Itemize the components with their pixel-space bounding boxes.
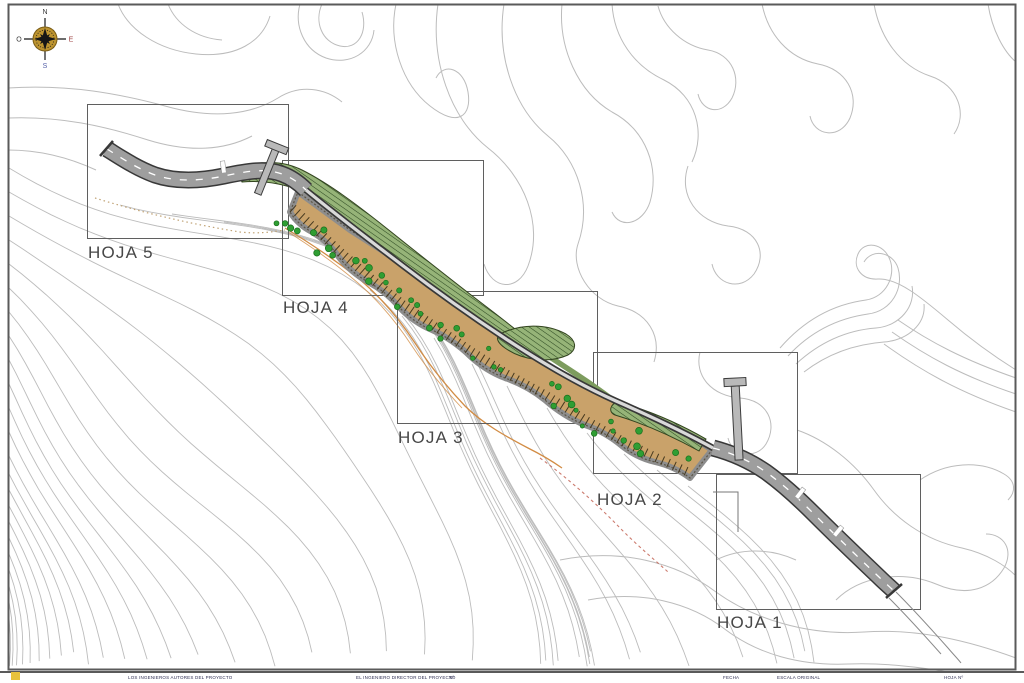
contour-line: [685, 166, 760, 284]
contour-line: [9, 474, 89, 664]
tree-symbol: [310, 230, 316, 236]
compass-letter-o: O: [16, 37, 22, 44]
tree-symbol: [580, 424, 584, 428]
tree-symbol: [438, 336, 443, 341]
contour-line: [920, 465, 1014, 500]
tree-symbol: [621, 438, 627, 444]
compass-rose: N S E O: [16, 9, 73, 70]
tree-symbol: [673, 450, 679, 456]
title-block: LOS INGENIEROS AUTORES DEL PROYECTOEL IN…: [0, 671, 1024, 683]
tree-symbol: [366, 278, 373, 285]
tree-symbol: [611, 429, 615, 433]
tree-symbol: [409, 298, 414, 303]
contour-line: [688, 486, 814, 662]
tree-symbol: [282, 221, 288, 227]
tree-symbol: [564, 395, 571, 402]
compass-letter-n: N: [42, 9, 47, 16]
tree-symbol: [362, 258, 367, 263]
road-east-surface: [713, 448, 894, 591]
contour-line: [9, 408, 147, 659]
corner-mark: [11, 672, 20, 680]
tree-symbol: [568, 401, 575, 408]
tree-symbol: [287, 225, 293, 231]
plan-drawing: HOJA 1HOJA 2HOJA 3HOJA 4HOJA 5: [0, 0, 1024, 683]
compass-letter-s: S: [43, 63, 48, 70]
tree-symbol: [274, 221, 279, 226]
title-block-text: ESCALA ORIGINAL: [777, 675, 820, 680]
tree-symbol: [397, 288, 402, 293]
tree-symbol: [438, 322, 444, 328]
contour-line: [9, 336, 235, 662]
contour-line: [319, 4, 364, 47]
sheet-label-hoja-4: HOJA 4: [283, 298, 349, 317]
title-block-text: HOJA Nº: [944, 675, 963, 680]
tree-symbol: [634, 443, 641, 450]
tree-symbol: [418, 311, 423, 316]
contour-line: [502, 4, 656, 362]
sheet-label-hoja-5: HOJA 5: [88, 243, 154, 262]
contour-line: [9, 288, 312, 652]
compass-letter-e: E: [69, 37, 74, 44]
tree-symbol: [325, 245, 332, 252]
contour-line: [560, 556, 1016, 658]
contour-line: [561, 4, 653, 223]
tree-symbol: [551, 403, 557, 409]
tree-symbol: [459, 332, 464, 337]
tree-symbol: [353, 257, 360, 264]
tree-symbol: [384, 280, 389, 285]
sheet-label-hoja-3: HOJA 3: [398, 428, 464, 447]
tree-symbol: [415, 303, 420, 308]
title-block-text: Nº: [449, 675, 454, 680]
contour-line: [658, 6, 736, 110]
tree-symbol: [550, 381, 555, 386]
contour-line: [168, 4, 222, 40]
sheet-label-hoja-1: HOJA 1: [717, 613, 783, 632]
contour-line: [436, 4, 533, 285]
tree-symbol: [379, 273, 385, 279]
contour-line: [612, 4, 698, 162]
contour-line: [9, 312, 275, 666]
tree-symbol: [636, 427, 643, 434]
title-block-text: EL INGENIERO DIRECTOR DEL PROYECTO: [356, 675, 456, 680]
tree-symbol: [498, 368, 503, 373]
contour-line: [988, 4, 1016, 62]
contour-line: [8, 87, 342, 114]
tree-symbol: [314, 250, 320, 256]
tree-symbol: [321, 227, 327, 233]
contour-line: [8, 150, 96, 170]
tree-symbol: [394, 304, 400, 310]
contour-line: [762, 4, 853, 133]
road-tail-line-1: [896, 592, 961, 663]
tree-symbol: [609, 419, 614, 424]
contour-line: [797, 430, 1016, 576]
tree-symbol: [555, 384, 561, 390]
contour-line: [780, 245, 1016, 370]
contour-line: [394, 4, 469, 118]
tree-symbol: [426, 325, 432, 331]
tree-symbol: [487, 346, 491, 350]
tree-symbol: [294, 228, 300, 234]
sheet-label-hoja-2: HOJA 2: [597, 490, 663, 509]
tree-symbol: [492, 365, 497, 370]
contour-line: [898, 320, 1016, 378]
tree-symbol: [686, 456, 691, 461]
road-tail-line-2: [889, 598, 941, 654]
tree-symbol: [637, 450, 644, 457]
tree-symbol: [591, 431, 597, 437]
title-block-text: FECHA: [723, 675, 739, 680]
contour-line: [874, 4, 960, 134]
site-plan-svg: HOJA 1HOJA 2HOJA 3HOJA 4HOJA 5: [0, 0, 1024, 683]
contour-line: [9, 384, 171, 658]
tree-symbol: [574, 408, 578, 412]
tree-symbol: [454, 325, 460, 331]
contour-line: [118, 4, 270, 55]
contour-line: [9, 602, 13, 666]
contour-line: [884, 344, 1016, 412]
contour-line: [892, 332, 1016, 394]
contour-line: [292, 220, 640, 652]
tree-symbol: [330, 252, 336, 258]
contour-line: [9, 456, 103, 658]
tree-symbol: [366, 265, 373, 272]
title-block-text: LOS INGENIEROS AUTORES DEL PROYECTO: [128, 675, 232, 680]
tree-symbol: [471, 356, 475, 360]
contour-line: [8, 118, 252, 149]
